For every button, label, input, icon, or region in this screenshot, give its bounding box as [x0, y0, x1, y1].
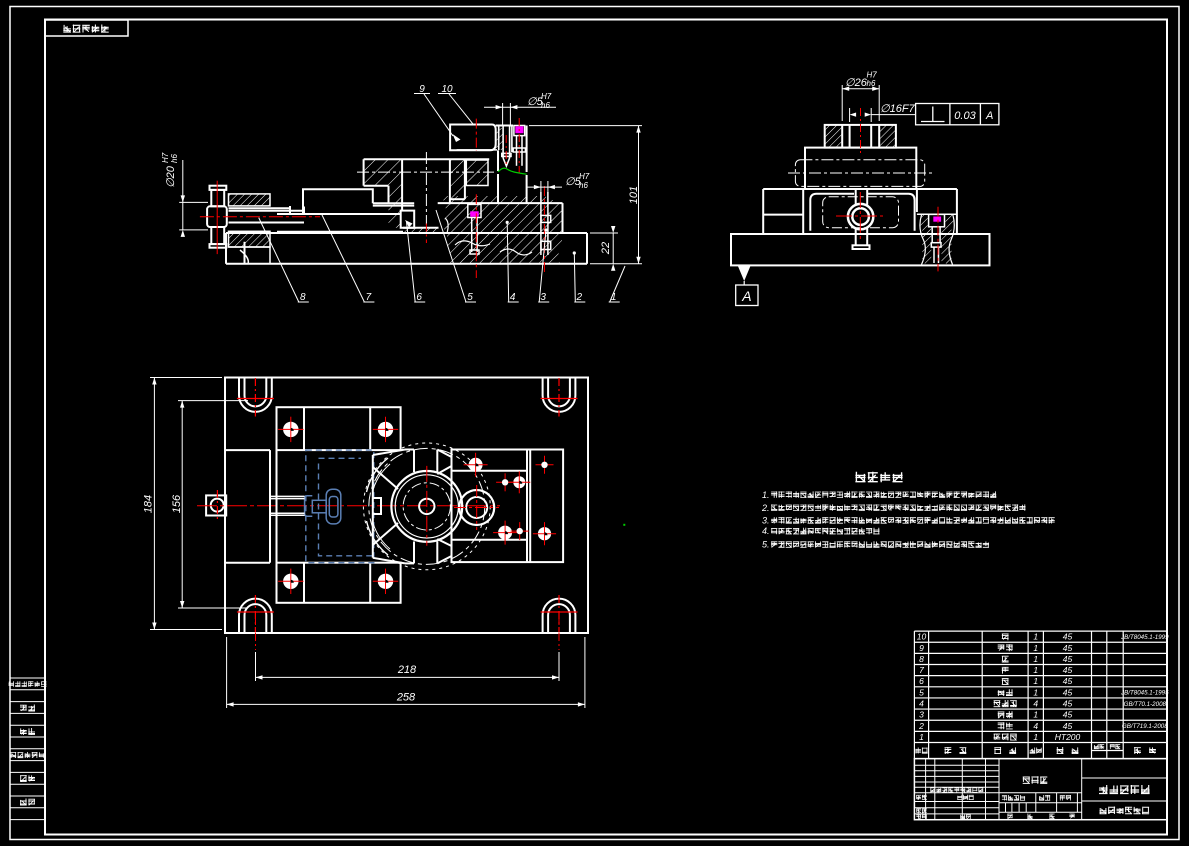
svg-text:45: 45 — [1063, 710, 1073, 720]
svg-text:∅20: ∅20 — [165, 165, 177, 188]
svg-text:HT200: HT200 — [1055, 732, 1081, 742]
svg-text:h6: h6 — [541, 101, 550, 110]
svg-text:1: 1 — [1033, 654, 1038, 664]
svg-text:h6: h6 — [170, 154, 179, 163]
svg-text:4: 4 — [919, 699, 924, 709]
svg-text:10: 10 — [917, 632, 927, 642]
svg-text:4: 4 — [1033, 721, 1038, 731]
svg-text:7: 7 — [919, 665, 924, 675]
svg-text:A: A — [741, 288, 751, 304]
svg-text:4: 4 — [1033, 699, 1038, 709]
svg-text:JB/T8045.1-1999: JB/T8045.1-1999 — [1120, 634, 1169, 641]
svg-text:1: 1 — [611, 292, 617, 303]
svg-text:184: 184 — [143, 495, 155, 513]
svg-text:1: 1 — [1033, 643, 1038, 653]
svg-text:45: 45 — [1063, 721, 1073, 731]
svg-text:1: 1 — [919, 732, 924, 742]
svg-text:2: 2 — [918, 721, 924, 731]
svg-text:GB/T70.1-2008: GB/T70.1-2008 — [1124, 701, 1167, 708]
svg-text:3: 3 — [540, 292, 546, 303]
svg-text:3.: 3. — [762, 516, 770, 526]
svg-text:h6: h6 — [579, 181, 588, 190]
svg-text:A: A — [985, 110, 993, 122]
svg-text:45: 45 — [1063, 654, 1073, 664]
svg-text:h6: h6 — [867, 79, 876, 88]
svg-text:45: 45 — [1063, 643, 1073, 653]
svg-text:2: 2 — [576, 292, 583, 303]
svg-text:22: 22 — [600, 242, 612, 255]
svg-text:JB/T8045.1-1995: JB/T8045.1-1995 — [1120, 690, 1169, 697]
svg-text:45: 45 — [1063, 687, 1073, 697]
svg-text:1: 1 — [1033, 676, 1038, 686]
svg-text:H7: H7 — [161, 152, 170, 163]
svg-text:H7: H7 — [541, 92, 552, 101]
svg-text:45: 45 — [1063, 699, 1073, 709]
svg-text:258: 258 — [396, 692, 416, 704]
svg-text:5: 5 — [919, 687, 924, 697]
svg-text:45: 45 — [1063, 632, 1073, 642]
svg-text:218: 218 — [397, 664, 417, 676]
svg-text:7: 7 — [366, 292, 372, 303]
svg-text:156: 156 — [171, 494, 183, 513]
svg-text:∅26: ∅26 — [845, 77, 868, 89]
svg-text:4: 4 — [510, 292, 516, 303]
svg-text:GB/T719.1-2008: GB/T719.1-2008 — [1122, 723, 1168, 730]
svg-text:9: 9 — [919, 643, 924, 653]
svg-text:3: 3 — [919, 710, 924, 720]
svg-text:45: 45 — [1063, 676, 1073, 686]
svg-text:101: 101 — [628, 186, 640, 204]
svg-text:0.03: 0.03 — [954, 110, 976, 122]
svg-text:∅16F7: ∅16F7 — [880, 103, 916, 115]
svg-text:1: 1 — [1033, 665, 1038, 675]
svg-text:1: 1 — [1033, 732, 1038, 742]
svg-text:5.: 5. — [762, 540, 770, 550]
svg-text:5: 5 — [467, 292, 473, 303]
svg-text:1: 1 — [1033, 710, 1038, 720]
svg-text:2.: 2. — [761, 503, 770, 513]
svg-text:8: 8 — [919, 654, 924, 664]
svg-text:1: 1 — [1033, 632, 1038, 642]
svg-text:6: 6 — [919, 676, 924, 686]
svg-text:1.: 1. — [762, 490, 770, 500]
svg-text:4.: 4. — [762, 526, 770, 536]
svg-text:8: 8 — [300, 292, 306, 303]
svg-text:H7: H7 — [579, 172, 590, 181]
svg-text:6: 6 — [416, 292, 422, 303]
svg-text:45: 45 — [1063, 665, 1073, 675]
svg-text:1: 1 — [1033, 687, 1038, 697]
